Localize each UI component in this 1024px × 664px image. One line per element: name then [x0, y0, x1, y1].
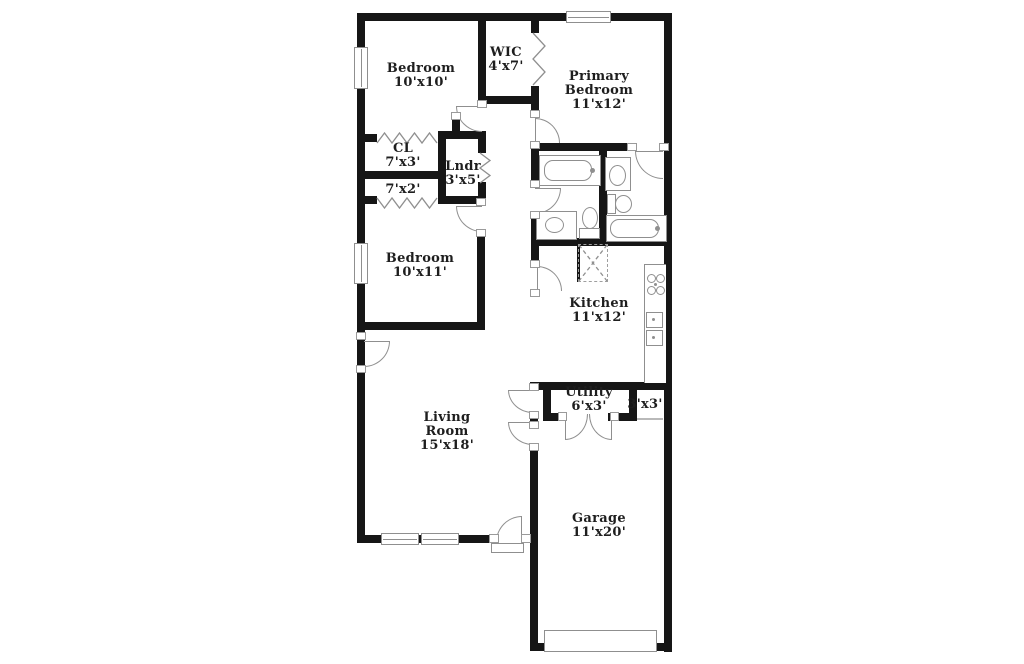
- room-label-line: 10'x11': [386, 266, 454, 280]
- room-label-line: Utility: [565, 386, 613, 400]
- room-label-line: Bedroom: [565, 84, 633, 98]
- room-label-line: Primary: [565, 70, 633, 84]
- wall: [438, 131, 486, 139]
- wall: [357, 134, 377, 142]
- primary-bedroom-door-arc: [535, 118, 560, 143]
- door-jamb: [356, 365, 366, 373]
- room-label-garage: Garage11'x20': [572, 512, 626, 540]
- wall: [452, 120, 460, 139]
- room-label-line: Garage: [572, 512, 626, 526]
- door-jamb: [530, 180, 540, 188]
- window: [354, 47, 368, 89]
- door-jamb: [530, 211, 540, 219]
- door-jamb: [451, 112, 461, 120]
- wall: [478, 13, 486, 108]
- room-label-line: 7'x2': [385, 183, 420, 197]
- utility-double-door-right-arc: [589, 414, 612, 440]
- wall: [530, 445, 538, 651]
- toilet-bowl: [615, 195, 632, 213]
- door-threshold: [491, 543, 524, 553]
- drain: [652, 318, 655, 321]
- pantry-box: [578, 244, 608, 282]
- door-jamb: [529, 443, 539, 451]
- room-label-kitchen: Kitchen11'x12': [569, 297, 628, 325]
- wall: [531, 13, 539, 33]
- room-label-laundry: Lndr3'x5': [445, 160, 481, 188]
- room-label-bedroom-10x10: Bedroom10'x10': [387, 62, 455, 90]
- door-jamb: [529, 383, 539, 391]
- window: [566, 11, 611, 23]
- room-label-closet-7x2: 7'x2': [385, 183, 420, 197]
- door-jamb: [476, 229, 486, 237]
- window-mullion: [383, 539, 417, 540]
- front-door-arc: [364, 341, 390, 367]
- room-label-closet-3x3: 3'x3': [627, 398, 662, 412]
- window: [354, 243, 368, 284]
- room-label-closet-cl: CL7'x3': [385, 142, 420, 170]
- utility-double-door-left-arc: [565, 414, 588, 440]
- room-label-line: WIC: [488, 46, 523, 60]
- room-label-wic: WIC4'x7': [488, 46, 523, 74]
- room-label-line: 10'x10': [387, 76, 455, 90]
- door-jamb: [530, 141, 540, 149]
- room-label-line: 11'x12': [565, 98, 633, 112]
- door-jamb: [530, 289, 540, 297]
- door-jamb: [530, 260, 540, 268]
- door-jamb: [529, 421, 539, 429]
- wall: [531, 143, 635, 151]
- room-label-line: 15'x18': [420, 439, 474, 453]
- room-label-line: Room: [420, 425, 474, 439]
- door-jamb: [521, 534, 531, 543]
- room-label-line: 11'x20': [572, 526, 626, 540]
- room-label-line: Kitchen: [569, 297, 628, 311]
- stove-burner: [656, 286, 665, 295]
- door-jamb: [476, 198, 486, 206]
- window-mullion: [423, 539, 457, 540]
- wall: [543, 390, 551, 421]
- room-label-line: Bedroom: [387, 62, 455, 76]
- room-label-line: 7'x3': [385, 156, 420, 170]
- rear-door-arc: [496, 516, 522, 542]
- sink: [609, 165, 626, 186]
- room-label-line: 3'x3': [627, 398, 662, 412]
- window-mullion: [568, 17, 609, 18]
- room-label-line: 4'x7': [488, 60, 523, 74]
- window-mullion: [361, 245, 362, 282]
- room-label-utility: Utility6'x3': [565, 386, 613, 414]
- toilet-bowl: [582, 207, 598, 229]
- room-label-line: Living: [420, 411, 474, 425]
- door-jamb: [477, 100, 487, 108]
- toilet-tank: [579, 228, 600, 239]
- room-label-living-room: LivingRoom15'x18': [420, 411, 474, 453]
- door-jamb: [356, 332, 366, 340]
- utility-door-arc: [508, 390, 533, 413]
- bifold-wic: [533, 33, 545, 85]
- room-label-line: Bedroom: [386, 252, 454, 266]
- door-jamb: [627, 143, 637, 151]
- door-jamb: [489, 534, 499, 543]
- door-jamb: [659, 143, 669, 151]
- wall: [357, 322, 485, 330]
- door-jamb: [529, 411, 539, 419]
- wall: [477, 231, 485, 330]
- room-label-line: 3'x5': [445, 174, 481, 188]
- floor-plan: Bedroom10'x10'WIC4'x7'PrimaryBedroom11'x…: [0, 0, 1024, 664]
- room-label-line: CL: [385, 142, 420, 156]
- bathtub-basin: [610, 219, 659, 238]
- stove-dot: [654, 283, 657, 286]
- room-label-line: 6'x3': [565, 400, 613, 414]
- bifold-lndr: [480, 153, 490, 183]
- stove-burner: [656, 274, 665, 283]
- faucet: [655, 226, 660, 231]
- window-mullion: [361, 49, 362, 87]
- room-label-primary-bedroom: PrimaryBedroom11'x12': [565, 70, 633, 112]
- window: [381, 533, 419, 545]
- wall: [357, 196, 377, 204]
- wall: [357, 171, 446, 179]
- faucet: [590, 168, 595, 173]
- room-label-line: Lndr: [445, 160, 481, 174]
- drain: [652, 336, 655, 339]
- sink: [545, 217, 564, 233]
- wall: [478, 96, 539, 104]
- stove-burner: [647, 274, 656, 283]
- wall: [357, 13, 672, 21]
- garage-door-panel: [544, 630, 657, 652]
- kitchen-door-arc: [537, 266, 562, 291]
- room-label-line: 11'x12': [569, 311, 628, 325]
- bifold-7x2: [377, 198, 437, 208]
- wall: [478, 139, 486, 153]
- room-label-bedroom-10x11: Bedroom10'x11': [386, 252, 454, 280]
- primary-bath-door-arc: [635, 151, 663, 179]
- door-jamb: [530, 110, 540, 118]
- stove-burner: [647, 286, 656, 295]
- bathtub-basin: [544, 160, 592, 181]
- window: [421, 533, 459, 545]
